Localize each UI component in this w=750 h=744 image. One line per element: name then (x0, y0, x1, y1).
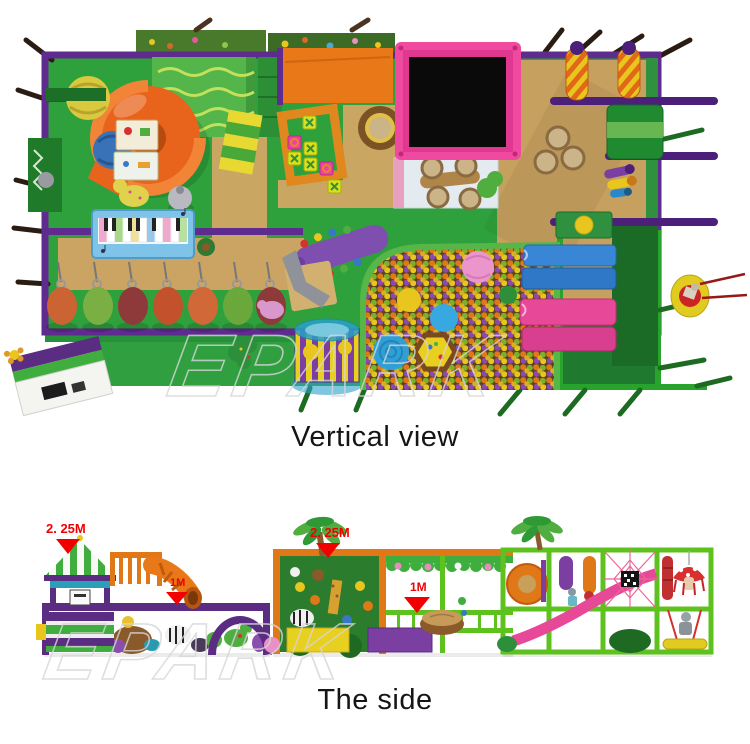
dot-green (458, 597, 466, 605)
dimension-arrow-icon (404, 597, 430, 613)
orange-mat (277, 48, 393, 105)
dimension-label: 1M (410, 580, 430, 594)
pink-ball (264, 637, 280, 653)
mushroom-toy (673, 551, 705, 595)
floral-trim (386, 556, 513, 572)
hanging-bags (559, 556, 596, 601)
side-view-caption: The side (0, 684, 750, 717)
side-view-illustration (0, 515, 750, 690)
zigzag-wall (28, 138, 62, 212)
dimension-label: 2. 25M (46, 521, 86, 536)
swing-seat (663, 610, 707, 649)
dimension-slide-1m: 1M (166, 577, 188, 605)
donut-tunnel (507, 560, 547, 604)
dimension-mid-225m: 2. 25M (310, 525, 350, 558)
product-image: EPARK Vertical view (0, 0, 750, 744)
striped-base-wall (36, 612, 114, 652)
carousel (291, 319, 363, 395)
red-column (662, 556, 673, 600)
spider-web-net (603, 550, 657, 608)
green-mound (609, 629, 651, 653)
dimension-arrow-icon (316, 543, 340, 558)
log-step (420, 610, 464, 635)
dimension-left-225m: 2. 25M (46, 521, 86, 554)
monkey-ring (197, 238, 215, 256)
green-barrel (607, 105, 663, 159)
spinner-ride (671, 274, 747, 317)
vertical-view-illustration (0, 0, 750, 470)
vertical-view-caption: Vertical view (0, 421, 750, 454)
dimension-arrow-icon (56, 539, 80, 554)
green-bush-small (497, 636, 517, 652)
roller-box (556, 212, 612, 238)
picture-blocks (114, 120, 158, 180)
palm-tree-right (509, 516, 565, 551)
base-panel-purple (368, 628, 432, 652)
small-figure (568, 588, 577, 606)
dimension-arrow-icon (166, 592, 188, 605)
dimension-label: 2. 25M (310, 525, 350, 540)
dimension-mid-1m: 1M (404, 580, 430, 613)
side-middle-block (264, 516, 513, 658)
dimension-label: 1M (170, 577, 188, 589)
wall-shelf (46, 88, 106, 101)
dot-blue (461, 610, 467, 616)
piano-mat (92, 208, 194, 258)
kids-table-mat (394, 156, 503, 209)
trampoline (395, 42, 521, 160)
side-right-block (497, 516, 711, 653)
base-panel-yellow (287, 628, 349, 652)
